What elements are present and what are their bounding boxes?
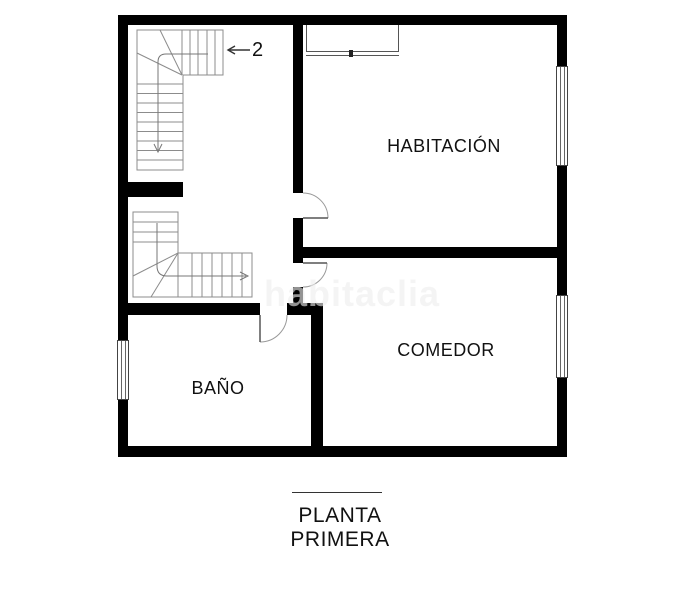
caption-rule (292, 492, 382, 493)
wall-bano-top (128, 303, 260, 315)
floor-caption: PLANTA PRIMERA (240, 504, 440, 552)
window-habitacion (556, 66, 568, 166)
window-comedor (556, 295, 568, 378)
wall-stair-divider (128, 182, 183, 197)
wall-bano-comedor (311, 303, 323, 446)
window-pane (121, 341, 126, 399)
staircase-upper (133, 26, 233, 176)
door-comedor (300, 260, 332, 292)
room-label-comedor: COMEDOR (346, 340, 546, 361)
wall-corridor-upper (293, 25, 303, 193)
floor-plan-canvas: 2 HABITACIÓN COMEDOR BAÑO habitaclia PLA… (0, 0, 698, 600)
wardrobe-handle-tick (349, 50, 353, 57)
window-pane (560, 296, 565, 377)
room-label-bano: BAÑO (118, 378, 318, 399)
window-bano (117, 340, 129, 400)
door-bano (257, 312, 291, 346)
staircase-lower (129, 208, 257, 303)
caption-line1: PLANTA (240, 504, 440, 528)
door-habitacion (300, 190, 335, 225)
wall-habitacion-comedor (303, 247, 557, 258)
window-pane (560, 67, 565, 165)
stair-level-number: 2 (252, 39, 263, 62)
left-arrow-icon (226, 44, 252, 56)
wardrobe (306, 25, 399, 52)
caption-line2: PRIMERA (240, 528, 440, 552)
room-label-habitacion: HABITACIÓN (344, 136, 544, 157)
